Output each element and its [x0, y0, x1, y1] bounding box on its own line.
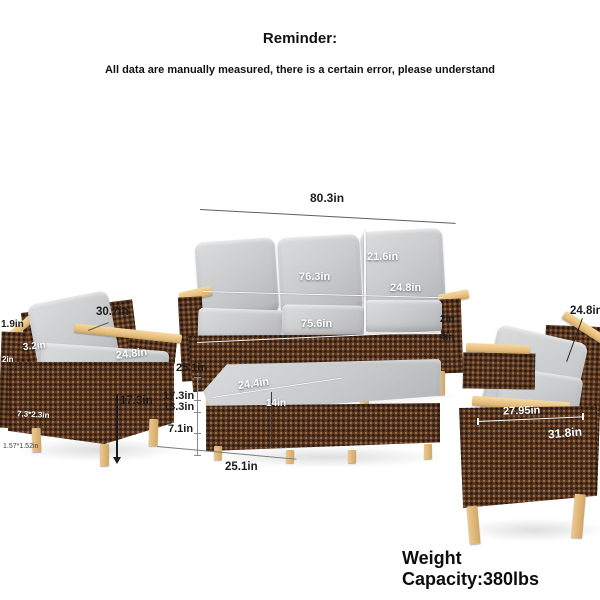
sofa-seat-width-label: 75.6in [301, 319, 332, 330]
ottoman-inner-width-label: 14in [266, 399, 286, 409]
ottoman-tick [194, 455, 201, 456]
ottoman-tick [194, 412, 201, 413]
sofa-back-height-dimline [364, 230, 366, 332]
sofa-back-cushion-1 [194, 237, 279, 318]
left-chair-frame-thickness-label: 1.9in [1, 320, 24, 330]
ottoman-base-height-label: 7.1in [168, 424, 193, 435]
sofa-cushion-depth-label: 24.8in [390, 283, 421, 294]
right-chair-back-height-label: 24.8in [570, 306, 600, 318]
sofa-back-height-label: 21.6in [367, 252, 398, 263]
left-chair-width-label: 30.7in [96, 307, 129, 319]
right-chair-armrest-dim-tick [582, 413, 584, 420]
sofa-overall-width-label: 80.3in [310, 192, 344, 204]
ottoman-tick [194, 377, 201, 378]
sofa-partial-label-top: 2in [440, 315, 454, 325]
ottoman-leg [286, 450, 294, 463]
left-chair-leg-height-arrow-line [116, 394, 118, 458]
reminder-subtitle: All data are manually measured, there is… [0, 64, 600, 76]
left-chair-leg [100, 444, 109, 466]
right-chair-armrest-dim-tick [477, 418, 479, 425]
left-chair-side-fragment-label: 2in [2, 356, 14, 364]
ottoman-leg [348, 450, 356, 463]
ottoman-leg [214, 446, 222, 460]
left-chair-leg [149, 419, 159, 446]
sofa-partial-label-bottom: 4in [440, 333, 454, 343]
ottoman-top-depth-label: 25.1in [176, 363, 207, 374]
left-chair-leg-height-label: 17.3in [120, 396, 153, 408]
ottoman-wicker-base [206, 403, 440, 451]
product-dimension-image: Reminder: All data are manually measured… [0, 0, 600, 600]
ottoman-left-dimline [197, 377, 198, 456]
ottoman-front-width-label: 25.1in [225, 462, 258, 474]
weight-capacity-text: Weight Capacity:380lbs [402, 548, 600, 590]
ottoman-cushion-top-height-label: 13.3in [163, 402, 194, 413]
sofa-back-width-label: 76.3in [299, 272, 330, 283]
right-chair-arm-upper-wicker [463, 352, 536, 389]
reminder-title: Reminder: [0, 30, 600, 47]
ottoman-tick [194, 400, 201, 401]
sofa-seat-cushion-3 [364, 300, 442, 332]
left-chair-leg-height-arrowhead [113, 457, 121, 464]
right-chair-depth-label: 31.8in [548, 426, 583, 441]
ottoman-tick [194, 433, 201, 434]
left-chair-leg-size-label: 1.57*1.52in [3, 443, 38, 450]
right-chair-armrest-length-label: 27.95in [503, 405, 541, 417]
ottoman-leg [424, 444, 432, 459]
right-chair-leg [466, 506, 480, 545]
sofa-width-dimline [200, 209, 456, 224]
left-chair-armrest-size-label: 7.3*2.3in [17, 410, 50, 420]
